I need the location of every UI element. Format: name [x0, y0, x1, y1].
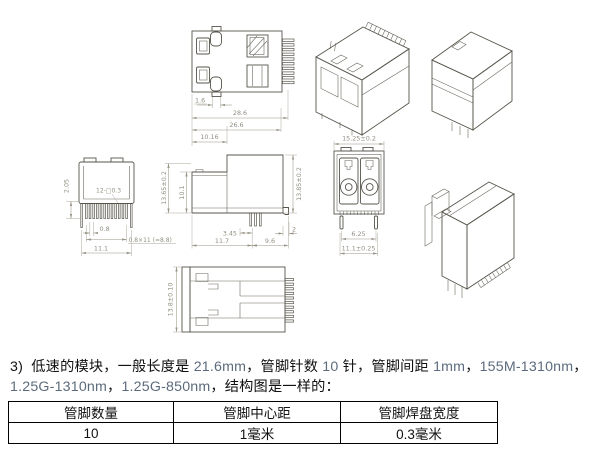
dim-row-width: 11.1 — [94, 245, 108, 253]
view-front-lc — [334, 148, 384, 230]
paragraph-segment: 1.25G-1310nm — [10, 379, 107, 395]
dim-pad-count: 12-□0.3 — [96, 188, 121, 195]
dim-height-left: 13.65±0.2 — [160, 171, 168, 205]
spec-header-pin-pitch: 管脚中心距 — [174, 402, 341, 423]
paragraph-segment: ， — [465, 359, 479, 375]
dim-front-width: 15.25±0.2 — [342, 135, 376, 143]
pin-comb-profile-view — [285, 279, 294, 323]
spec-header-row: 管脚数量 管脚中心距 管脚焊盘宽度 — [9, 402, 498, 423]
pin-comb-top-view — [283, 39, 295, 84]
paragraph-segment: 3) 低速的模块，一般长度是 — [10, 359, 194, 375]
paragraph-segment: ， — [573, 359, 587, 375]
spec-value-pad-width: 0.3毫米 — [341, 423, 498, 444]
dim-tab-width: 1.6 — [195, 97, 205, 105]
paragraph-segment: 1.25G-850nm — [121, 379, 210, 395]
dim-tab-height: 2.05 — [63, 179, 71, 193]
dim-pin-pitch: 0.8 — [100, 225, 110, 233]
dim-body-width: 26.6 — [229, 121, 243, 129]
paragraph-segment: ，管脚针数 — [246, 359, 322, 375]
spec-value-pin-pitch: 1毫米 — [174, 423, 341, 444]
dim-height-top: 13.8±0.10 — [167, 283, 175, 317]
dimension-annotations: 1.6 28.6 26.6 10.16 13.65±0.2 10.1 13.85… — [63, 90, 385, 332]
paragraph-segment: 针，管脚间距 — [338, 359, 433, 375]
paragraph-segment: 10 — [322, 359, 338, 375]
dim-height-inner: 10.1 — [178, 185, 186, 199]
paragraph-segment: ， — [107, 379, 121, 395]
dim-bottom-left: 11.7 — [215, 237, 229, 245]
dim-leg-pitch: 6.25 — [351, 230, 365, 238]
dim-foot: 2 — [292, 226, 296, 234]
spec-table: 管脚数量 管脚中心距 管脚焊盘宽度 10 1毫米 0.3毫米 — [8, 401, 498, 444]
dim-pitch-total: 0.8×11 (=8.8) — [129, 237, 172, 244]
dim-bottom-right: 9.6 — [265, 237, 275, 245]
document-page: 1.6 28.6 26.6 10.16 13.65±0.2 10.1 13.85… — [0, 0, 603, 454]
dim-leg-span: 11.1±0.25 — [342, 245, 376, 253]
view-profile — [182, 267, 294, 332]
technical-drawing: 1.6 28.6 26.6 10.16 13.65±0.2 10.1 13.85… — [0, 0, 603, 348]
isometric-view-front-right — [432, 32, 512, 138]
view-side — [192, 155, 289, 226]
dim-outer-width: 28.6 — [233, 109, 247, 117]
spec-value-pin-count: 10 — [9, 423, 174, 444]
spec-header-pad-width: 管脚焊盘宽度 — [341, 402, 498, 423]
paragraph-segment: 21.6mm — [194, 359, 246, 375]
dim-height-right: 13.85±0.2 — [295, 167, 303, 201]
paragraph-segment: 155M-1310nm — [480, 359, 574, 375]
isometric-view-front-left — [316, 22, 409, 135]
spec-header-pin-count: 管脚数量 — [9, 402, 174, 423]
paragraph-segment: 1mm — [433, 359, 465, 375]
isometric-view-rear — [425, 182, 514, 298]
pin-row — [81, 204, 132, 228]
view-top-plan — [192, 27, 294, 97]
spec-value-row: 10 1毫米 0.3毫米 — [9, 423, 498, 444]
paragraph-segment: ，结构图是一样的： — [210, 379, 340, 395]
dim-nose-width: 10.16 — [200, 133, 218, 141]
paragraph: 3) 低速的模块，一般长度是 21.6mm，管脚针数 10 针，管脚间距 1mm… — [10, 357, 595, 397]
